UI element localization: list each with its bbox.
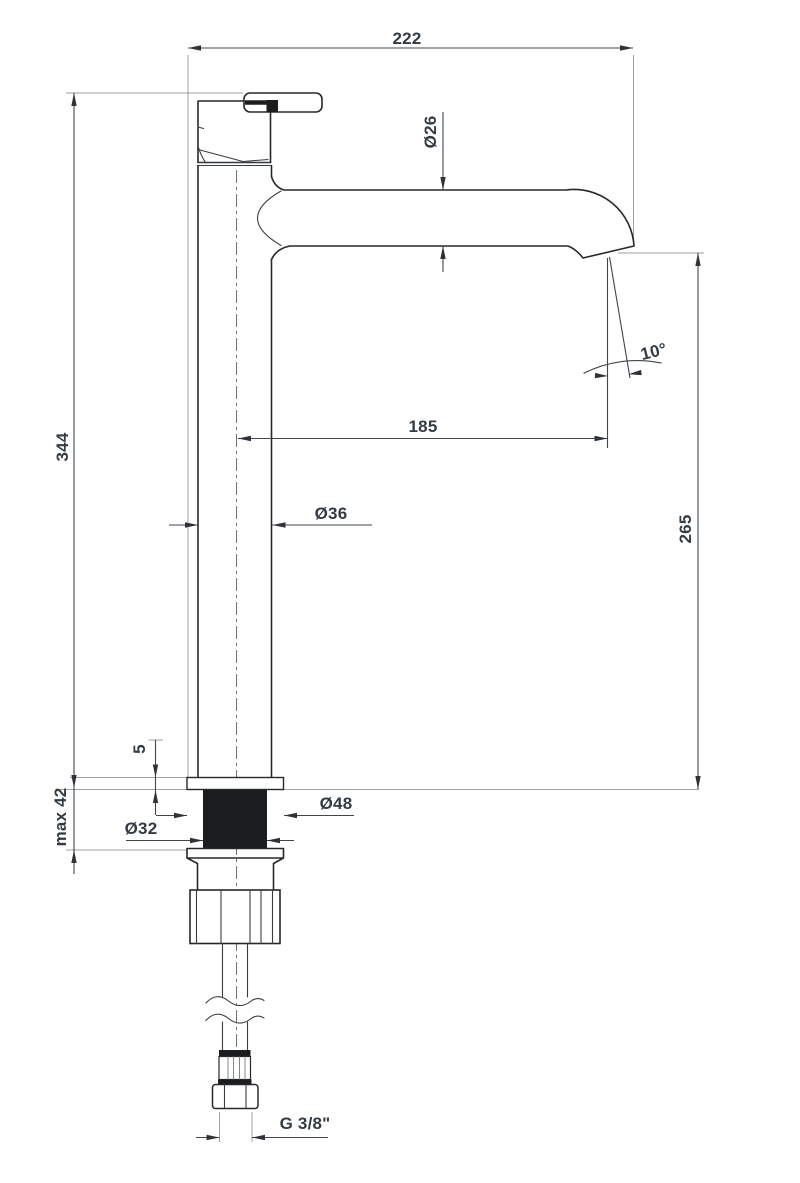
arrow-222-left	[188, 45, 201, 50]
dim-total-height-label: 344	[53, 432, 72, 461]
mounting-nut	[190, 890, 280, 944]
arrow-d32-right	[267, 838, 280, 843]
dimension-lines	[74, 48, 698, 1138]
faucet-technical-drawing: 222 Ø26 344 185 10° 265 Ø36 5 max 42 Ø32…	[0, 0, 800, 1183]
angle-arc	[584, 361, 662, 374]
connector-upper-band	[219, 1050, 251, 1057]
drawing-canvas: 222 Ø26 344 185 10° 265 Ø36 5 max 42 Ø32…	[0, 0, 800, 1183]
arrow-344-bottom	[71, 775, 76, 788]
arrow-185-left	[238, 436, 251, 441]
arrow-344-top	[71, 93, 76, 106]
arrow-g38-left	[207, 1135, 220, 1140]
arrow-5-bottom	[153, 790, 158, 803]
spout-outline	[272, 177, 635, 260]
faucet-handle	[244, 93, 322, 112]
head-notch-tick	[198, 127, 204, 129]
hose-break-line-upper	[206, 997, 264, 1006]
arrow-max42-bottom	[71, 850, 76, 863]
dim-plate-thickness-label: 5	[130, 744, 149, 754]
faucet-spout	[258, 177, 635, 260]
dim-total-width-label: 222	[393, 29, 422, 48]
arrow-d36-left	[185, 522, 198, 527]
arrow-265-top	[695, 253, 700, 266]
arrow-5-top	[153, 765, 158, 778]
dim-shank-diameter-label: Ø32	[125, 819, 158, 838]
hose-break-line-lower	[206, 1014, 264, 1023]
threaded-shank	[203, 790, 267, 849]
dim-hose-thread-label: G 3/8"	[280, 1114, 331, 1133]
dim-spout-angle-label: 10°	[639, 339, 669, 364]
arrow-d26-bottom	[440, 246, 445, 259]
base-plate	[187, 778, 284, 790]
connector-hex-nut	[213, 1085, 259, 1109]
dim-plate-diameter-label: Ø48	[320, 794, 353, 813]
arrow-d48-left	[174, 813, 187, 818]
angle-slanted-line	[610, 257, 631, 378]
extension-lines	[59, 55, 704, 1142]
arrow-185-right	[595, 436, 608, 441]
dimension-arrows	[71, 45, 700, 1140]
head-left-curve	[198, 146, 206, 163]
arrow-d48-right	[284, 813, 297, 818]
head-column-joint	[198, 163, 272, 166]
faucet-outline	[187, 93, 634, 1109]
arrow-265-bottom	[695, 776, 700, 789]
arrow-g38-right	[252, 1135, 265, 1140]
dim-max-mounting-label: max 42	[51, 788, 70, 847]
dim-spout-reach-label: 185	[409, 417, 438, 436]
arrow-angle-left	[595, 373, 608, 379]
dim-body-diameter-label: Ø36	[315, 504, 348, 523]
arrow-d36-right	[273, 522, 286, 527]
hose-connector	[213, 1050, 259, 1109]
handle-neck	[267, 100, 279, 112]
mounting-flange	[187, 849, 284, 891]
supply-hose	[206, 944, 264, 1051]
arrow-d32-left	[190, 838, 203, 843]
connector-sleeve	[219, 1057, 251, 1080]
arrow-222-right	[620, 45, 633, 50]
dim-spout-tube-diameter-label: Ø26	[421, 116, 440, 149]
hose-walls	[223, 944, 248, 1051]
dim-outlet-height-label: 265	[676, 515, 695, 544]
faucet-column	[198, 166, 272, 778]
arrow-d26-top	[440, 177, 445, 190]
spout-saddle-curve	[258, 191, 282, 246]
head-tilt-line	[200, 150, 268, 162]
mounting-nut-body	[190, 890, 280, 944]
